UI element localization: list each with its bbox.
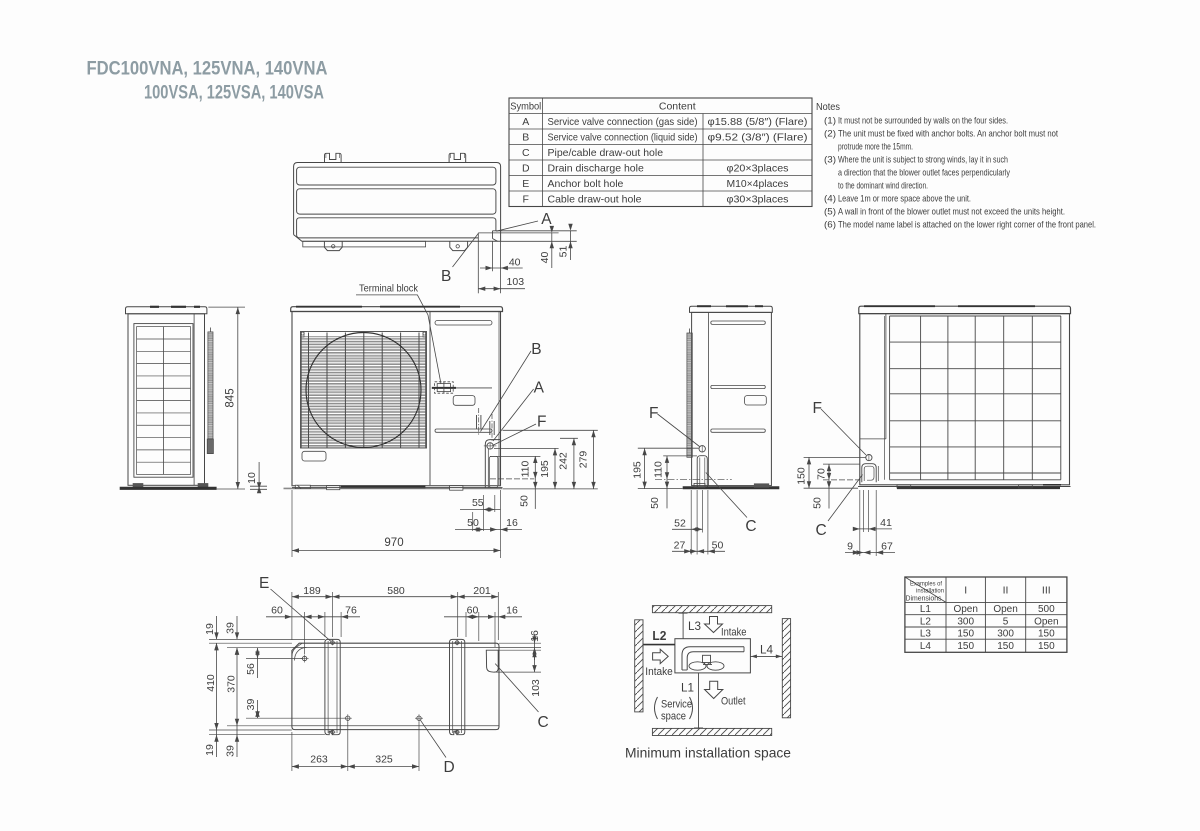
svg-text:F: F (523, 193, 529, 205)
svg-text:A wall in front of the blower: A wall in front of the blower outlet mus… (838, 207, 1065, 218)
svg-text:I: I (964, 585, 967, 597)
svg-text:E: E (522, 178, 529, 190)
svg-text:370: 370 (226, 675, 238, 693)
svg-text:150: 150 (957, 629, 974, 640)
svg-text:40: 40 (539, 252, 551, 264)
svg-text:φ20×3places: φ20×3places (727, 162, 789, 174)
svg-text:110: 110 (519, 460, 531, 477)
svg-text:19: 19 (204, 623, 216, 635)
svg-text:50: 50 (519, 495, 531, 507)
svg-text:Service valve connection (gas: Service valve connection (gas side) (548, 116, 698, 128)
svg-text:Where the unit is subject to s: Where the unit is subject to strong wind… (838, 155, 1008, 166)
svg-text:300: 300 (997, 629, 1014, 640)
svg-text:39: 39 (225, 622, 237, 634)
svg-text:L3: L3 (920, 629, 932, 640)
svg-text:E: E (259, 575, 269, 592)
svg-text:50: 50 (467, 517, 479, 529)
svg-text:50: 50 (812, 497, 824, 509)
svg-text:Symbol: Symbol (510, 100, 541, 112)
svg-text:52: 52 (674, 518, 686, 530)
svg-text:(2): (2) (824, 129, 836, 140)
svg-text:Service valve connection (liqu: Service valve connection (liquid side) (548, 131, 698, 143)
svg-text:φ30×3places: φ30×3places (727, 193, 789, 205)
svg-text:The model name label is attach: The model name label is attached on the … (838, 220, 1096, 231)
svg-text:L1: L1 (920, 604, 932, 615)
svg-text:M10×4places: M10×4places (727, 178, 789, 190)
svg-text:60: 60 (271, 605, 283, 617)
svg-text:C: C (538, 714, 549, 731)
svg-text:D: D (522, 162, 530, 174)
svg-text:(1): (1) (824, 116, 836, 127)
svg-text:C: C (745, 518, 756, 535)
svg-text:500: 500 (1038, 604, 1055, 615)
svg-text:10: 10 (246, 472, 258, 484)
svg-text:Intake: Intake (645, 666, 673, 678)
svg-text:Terminal block: Terminal block (359, 283, 419, 295)
svg-text:150: 150 (1038, 641, 1055, 652)
svg-text:189: 189 (303, 585, 321, 597)
svg-text:150: 150 (997, 641, 1014, 652)
svg-text:Examples of: Examples of (910, 581, 942, 588)
svg-text:F: F (813, 400, 822, 417)
svg-text:φ9.52 (3/8″) (Flare): φ9.52 (3/8″) (Flare) (708, 131, 808, 143)
svg-text:76: 76 (345, 605, 357, 617)
svg-text:A: A (534, 380, 545, 397)
svg-text:325: 325 (375, 754, 393, 766)
svg-text:263: 263 (310, 754, 328, 766)
svg-text:150: 150 (1038, 629, 1055, 640)
svg-text:41: 41 (880, 517, 892, 529)
svg-text:L2: L2 (920, 616, 932, 627)
svg-text:Dimensions: Dimensions (906, 594, 942, 603)
svg-text:φ15.88 (5/8″) (Flare): φ15.88 (5/8″) (Flare) (708, 116, 808, 128)
svg-text:Minimum installation space: Minimum installation space (625, 745, 791, 761)
svg-text:Service: Service (661, 699, 692, 711)
svg-text:space: space (661, 711, 686, 723)
svg-text:5: 5 (1003, 616, 1009, 627)
svg-text:to the dominant wind direction: to the dominant wind direction. (838, 181, 928, 192)
svg-text:III: III (1042, 585, 1051, 597)
svg-text:Open: Open (993, 604, 1017, 615)
svg-text:A: A (541, 211, 552, 228)
svg-text:Notes: Notes (816, 102, 840, 113)
svg-text:9: 9 (847, 541, 853, 553)
svg-text:FDC100VNA, 125VNA, 140VNA: FDC100VNA, 125VNA, 140VNA (87, 59, 328, 80)
svg-text:Open: Open (1034, 616, 1058, 627)
svg-text:103: 103 (530, 679, 542, 697)
svg-text:The unit must be fixed with an: The unit must be fixed with anchor bolts… (838, 129, 1058, 140)
svg-text:27: 27 (674, 540, 686, 552)
svg-text:195: 195 (539, 460, 551, 478)
svg-text:100VSA, 125VSA, 140VSA: 100VSA, 125VSA, 140VSA (144, 83, 324, 104)
svg-text:a direction that the blower ou: a direction that the blower outlet faces… (838, 168, 1010, 179)
svg-text:protrude more the 15mm.: protrude more the 15mm. (838, 142, 913, 153)
svg-text:B: B (441, 268, 451, 285)
svg-text:242: 242 (558, 452, 570, 470)
svg-text:55: 55 (472, 497, 484, 509)
svg-text:39: 39 (245, 699, 257, 711)
svg-text:40: 40 (509, 257, 521, 269)
svg-text:B: B (531, 341, 541, 358)
svg-text:C: C (522, 147, 530, 159)
svg-text:970: 970 (384, 537, 403, 549)
svg-text:(4): (4) (824, 194, 836, 205)
svg-text:201: 201 (473, 585, 491, 597)
svg-text:16: 16 (506, 605, 518, 617)
svg-text:A: A (522, 116, 529, 128)
svg-text:F: F (649, 405, 658, 422)
svg-text:Anchor bolt hole: Anchor bolt hole (548, 178, 624, 190)
svg-text:150: 150 (957, 641, 974, 652)
svg-text:L3: L3 (688, 619, 701, 633)
svg-text:150: 150 (796, 467, 808, 485)
svg-text:L4: L4 (920, 641, 932, 652)
svg-text:51: 51 (557, 246, 569, 258)
svg-text:C: C (816, 522, 827, 539)
svg-text:L1: L1 (681, 681, 694, 695)
svg-text:(5): (5) (824, 207, 836, 218)
svg-text:II: II (1003, 585, 1009, 597)
svg-text:300: 300 (957, 616, 974, 627)
svg-text:Intake: Intake (721, 626, 747, 638)
svg-text:195: 195 (631, 461, 643, 479)
svg-text:Pipe/cable draw-out hole: Pipe/cable draw-out hole (548, 147, 664, 159)
svg-text:Content: Content (659, 100, 696, 112)
svg-text:50: 50 (712, 540, 724, 552)
svg-text:Cable draw-out hole: Cable draw-out hole (548, 193, 642, 205)
svg-text:Leave 1m or more space above t: Leave 1m or more space above the unit. (838, 194, 971, 205)
svg-text:L4: L4 (760, 643, 773, 657)
svg-text:70: 70 (816, 468, 828, 480)
svg-text:845: 845 (225, 388, 237, 407)
svg-text:56: 56 (245, 663, 257, 675)
svg-text:50: 50 (649, 497, 661, 509)
svg-text:110: 110 (653, 461, 665, 478)
svg-text:39: 39 (225, 745, 237, 757)
svg-text:Outlet: Outlet (721, 696, 746, 708)
svg-text:(6): (6) (824, 220, 836, 231)
svg-text:Drain discharge hole: Drain discharge hole (548, 162, 644, 174)
svg-text:60: 60 (467, 605, 479, 617)
svg-text:67: 67 (881, 541, 893, 553)
svg-text:It must not be surrounded by w: It must not be surrounded by walls on th… (838, 116, 1008, 127)
svg-text:279: 279 (578, 451, 590, 469)
svg-text:(3): (3) (824, 155, 836, 166)
svg-text:580: 580 (387, 585, 405, 597)
svg-text:F: F (537, 414, 546, 431)
svg-text:L2: L2 (652, 628, 666, 643)
svg-text:Open: Open (953, 604, 977, 615)
svg-text:103: 103 (507, 276, 525, 288)
svg-text:16: 16 (529, 630, 541, 642)
svg-text:410: 410 (205, 674, 217, 692)
svg-text:16: 16 (506, 517, 518, 529)
svg-text:B: B (522, 131, 529, 143)
svg-text:19: 19 (204, 744, 216, 756)
svg-text:D: D (444, 759, 455, 776)
